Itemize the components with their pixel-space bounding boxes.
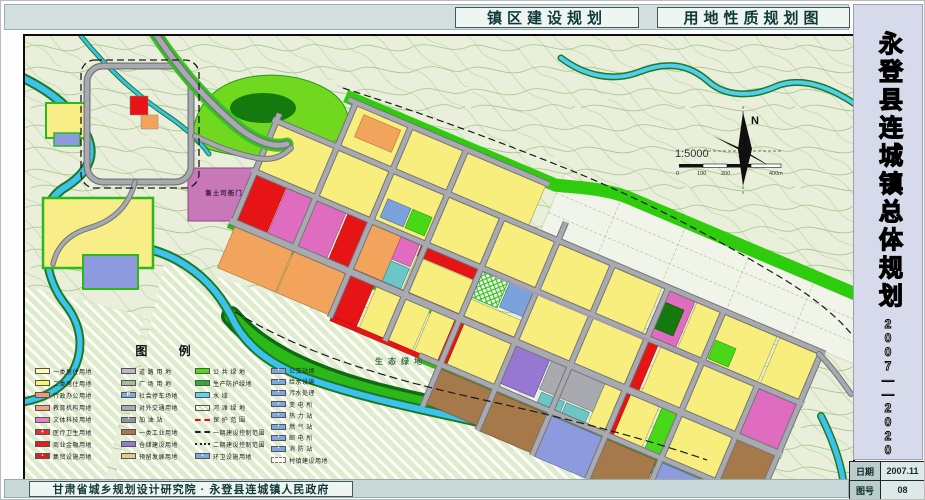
legend-item: • 燃 气 站 — [271, 421, 327, 432]
legend-label: 消 防 站 — [289, 444, 313, 453]
legend-label: 医疗卫生用地 — [53, 428, 92, 437]
legend-item: • 给水设施 — [271, 376, 327, 387]
legend-label: 污水处理 — [289, 388, 315, 397]
legend-label: 给水设施 — [289, 377, 315, 386]
legend-swatch — [195, 431, 210, 433]
legend-label: 环卫设施用地 — [213, 452, 252, 461]
legend-item: 河 滩 绿 地 — [195, 402, 271, 414]
legend-swatch — [121, 429, 136, 435]
legend-swatch — [121, 453, 136, 459]
north-label: N — [751, 115, 759, 127]
legend-item: 商业金融用地 — [35, 438, 121, 450]
legend-item: 保 护 范 围 — [195, 414, 271, 426]
legend-label: 一类工业用地 — [139, 428, 178, 437]
legend-column-2: 道 路 用 地 广 场 用 地 P 社会停车场地 — [121, 365, 195, 466]
legend-item: • 热 力 站 — [271, 410, 327, 421]
legend-swatch: • — [271, 424, 286, 430]
legend-swatch — [35, 441, 50, 447]
legend-column-1: 一类居住用地 二类居住用地 行政办公用地 — [35, 365, 121, 466]
legend-swatch: • — [271, 368, 286, 374]
plan-sheet: 镇区建设规划 用地性质规划图 — [0, 0, 925, 500]
legend-item: P 社会停车场地 — [121, 389, 195, 401]
legend-swatch: + — [35, 429, 50, 435]
legend-item: • 加 油 站 — [121, 414, 195, 426]
legend-label: 文体科技用地 — [53, 415, 92, 424]
legend-label: 公交站场 — [289, 366, 315, 375]
legend-label: 二期建设控制范围 — [213, 440, 265, 449]
legend-item: 二期建设控制范围 — [195, 438, 271, 450]
legend-swatch — [271, 457, 286, 463]
footer-bar: 甘肃省城乡规划设计研究院 · 永登县连城镇人民政府 — [4, 479, 849, 498]
legend-item: • 集贸设施用地 — [35, 450, 121, 462]
legend-label: 道 路 用 地 — [139, 367, 172, 376]
scale-text: 1:5000 — [675, 148, 709, 160]
plan-years-vertical: 2007——2020 — [881, 317, 895, 457]
legend-item: 生产防护绿地 — [195, 377, 271, 389]
legend-label: 变 电 所 — [289, 400, 313, 409]
legend-item: 一期建设控制范围 — [195, 426, 271, 438]
legend-swatch — [121, 405, 136, 411]
legend-label: 邮 电 所 — [289, 433, 313, 442]
legend-swatch — [121, 441, 136, 447]
legend-label: 一期建设控制范围 — [213, 428, 265, 437]
legend-item: + 医疗卫生用地 — [35, 426, 121, 438]
plan-title-vertical: 永登县连城镇总体规划 — [871, 31, 906, 311]
svg-text:100: 100 — [697, 171, 706, 177]
legend-item: 预留发展用地 — [121, 450, 195, 462]
legend-swatch: • — [271, 379, 286, 385]
legend-swatch: • — [195, 453, 210, 459]
legend-swatch — [35, 405, 50, 411]
legend-label: 村镇建设用地 — [289, 456, 328, 465]
legend-label: 商业金融用地 — [53, 440, 92, 449]
legend-swatch — [35, 392, 50, 398]
map-label-eco-green: 生态绿地 — [375, 356, 427, 367]
legend-item: 教育机构用地 — [35, 402, 121, 414]
legend-item: • 公交站场 — [271, 365, 327, 376]
legend-swatch — [195, 419, 210, 421]
legend-swatch: P — [121, 392, 136, 398]
map-label-heritage: 鲁土司衙门 — [191, 187, 257, 197]
title-sidebar: 永登县连城镇总体规划 2007——2020 — [853, 4, 923, 460]
svg-text:200: 200 — [721, 171, 730, 177]
header-title-landuse-text: 用地性质规划图 — [683, 7, 823, 28]
legend-item: 文体科技用地 — [35, 414, 121, 426]
legend-column-4: • 公交站场 • 给水设施 • 污水处理 — [271, 365, 327, 466]
map-canvas: N 1:5000 0 100 200 400m 鲁土司衙门 生态绿地 图 例 — [23, 34, 855, 481]
header-title-construction-text: 镇区建设规划 — [487, 7, 607, 28]
legend-label: 预留发展用地 — [139, 452, 178, 461]
legend-label: 教育机构用地 — [53, 403, 92, 412]
legend-swatch — [195, 380, 210, 386]
legend-label: 保 护 范 围 — [213, 415, 246, 424]
legend-label: 对外交通用地 — [139, 403, 178, 412]
legend-item: • 变 电 所 — [271, 399, 327, 410]
legend: 图 例 一类居住用地 二类居住用地 — [35, 342, 327, 466]
legend-column-3: 公 共 绿 地 生产防护绿地 水 域 — [195, 365, 271, 466]
legend-label: 社会停车场地 — [139, 391, 178, 400]
legend-label: 广 场 用 地 — [139, 379, 172, 388]
header-bar: 镇区建设规划 用地性质规划图 — [4, 4, 849, 30]
legend-item: 一类居住用地 — [35, 365, 121, 377]
legend-label: 集贸设施用地 — [53, 452, 92, 461]
legend-title: 图 例 — [75, 342, 265, 359]
legend-label: 燃 气 站 — [289, 422, 313, 431]
header-title-construction: 镇区建设规划 — [455, 7, 639, 28]
legend-item: • 环卫设施用地 — [195, 450, 271, 462]
legend-swatch — [195, 405, 210, 411]
legend-label: 河 滩 绿 地 — [213, 403, 246, 412]
legend-item: • 邮 电 所 — [271, 432, 327, 443]
legend-item: • 污水处理 — [271, 387, 327, 398]
legend-label: 生产防护绿地 — [213, 379, 252, 388]
legend-swatch: • — [271, 435, 286, 441]
legend-item: 道 路 用 地 — [121, 365, 195, 377]
legend-swatch — [195, 368, 210, 374]
legend-swatch — [195, 392, 210, 398]
legend-label: 一类居住用地 — [53, 367, 92, 376]
legend-swatch — [121, 368, 136, 374]
legend-item: 广 场 用 地 — [121, 377, 195, 389]
legend-label: 仓储建设用地 — [139, 440, 178, 449]
legend-swatch: • — [271, 412, 286, 418]
legend-swatch: • — [271, 390, 286, 396]
legend-label: 加 油 站 — [139, 415, 163, 424]
legend-item: 对外交通用地 — [121, 402, 195, 414]
header-title-landuse: 用地性质规划图 — [657, 7, 850, 28]
legend-label: 行政办公用地 — [53, 391, 92, 400]
legend-swatch — [195, 443, 210, 445]
legend-item: 行政办公用地 — [35, 389, 121, 401]
legend-item: 二类居住用地 — [35, 377, 121, 389]
legend-swatch — [35, 380, 50, 386]
svg-text:400m: 400m — [769, 171, 783, 177]
legend-item: 一类工业用地 — [121, 426, 195, 438]
legend-label: 二类居住用地 — [53, 379, 92, 388]
legend-swatch — [35, 368, 50, 374]
date-value: 2007.11 — [881, 462, 924, 480]
legend-swatch: • — [271, 446, 286, 452]
legend-label: 水 域 — [213, 391, 228, 400]
legend-label: 公 共 绿 地 — [213, 367, 246, 376]
legend-item: 水 域 — [195, 389, 271, 401]
legend-swatch: • — [121, 417, 136, 423]
info-table: 日期 2007.11 图号 08 — [849, 461, 925, 500]
legend-swatch — [35, 417, 50, 423]
legend-swatch: • — [35, 453, 50, 459]
legend-swatch — [121, 380, 136, 386]
sheet-number-label: 图号 — [850, 481, 880, 499]
legend-item: • 消 防 站 — [271, 443, 327, 454]
legend-swatch: • — [271, 401, 286, 407]
legend-item: 公 共 绿 地 — [195, 365, 271, 377]
legend-label: 热 力 站 — [289, 411, 313, 420]
legend-item: 仓储建设用地 — [121, 438, 195, 450]
credit-box: 甘肃省城乡规划设计研究院 · 永登县连城镇人民政府 — [29, 481, 353, 497]
sheet-number-value: 08 — [881, 481, 924, 499]
svg-text:0: 0 — [676, 171, 679, 177]
date-label: 日期 — [850, 462, 880, 480]
legend-item: 村镇建设用地 — [271, 455, 327, 466]
